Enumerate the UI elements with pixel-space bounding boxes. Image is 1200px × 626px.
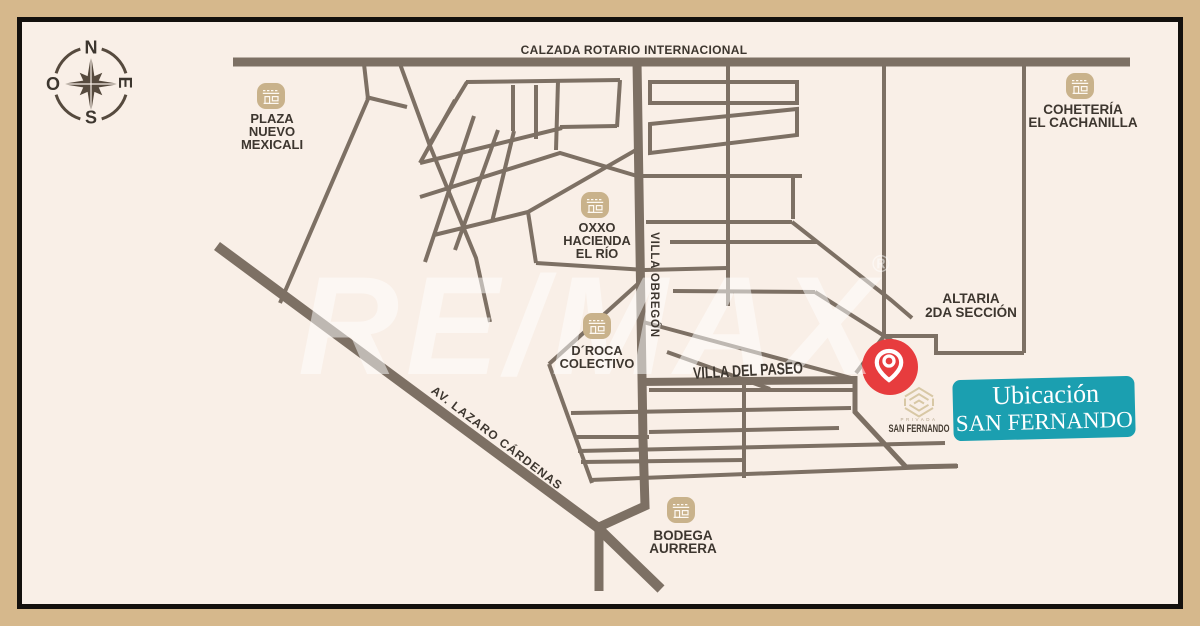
- svg-text:E: E: [115, 76, 135, 88]
- svg-text:ALTARIA: ALTARIA: [942, 291, 999, 306]
- svg-text:EL RÍO: EL RÍO: [576, 246, 618, 261]
- svg-text:Ubicación: Ubicación: [992, 379, 1100, 411]
- svg-text:COLECTIVO: COLECTIVO: [560, 356, 635, 371]
- svg-text:EL CACHANILLA: EL CACHANILLA: [1028, 115, 1137, 130]
- svg-text:O: O: [46, 74, 60, 94]
- svg-text:S: S: [85, 108, 97, 128]
- svg-text:CALZADA ROTARIO INTERNACIONAL: CALZADA ROTARIO INTERNACIONAL: [521, 43, 748, 57]
- svg-text:PRIVADA: PRIVADA: [901, 417, 938, 422]
- svg-text:2DA SECCIÓN: 2DA SECCIÓN: [925, 305, 1017, 320]
- svg-text:SAN FERNANDO: SAN FERNANDO: [956, 407, 1134, 436]
- svg-text:AURRERA: AURRERA: [649, 541, 717, 556]
- svg-text:®: ®: [872, 251, 890, 278]
- svg-text:VILLA OBREGÓN: VILLA OBREGÓN: [648, 232, 661, 338]
- svg-text:MEXICALI: MEXICALI: [241, 137, 303, 152]
- svg-text:SAN FERNANDO: SAN FERNANDO: [889, 423, 950, 435]
- svg-text:N: N: [85, 38, 98, 58]
